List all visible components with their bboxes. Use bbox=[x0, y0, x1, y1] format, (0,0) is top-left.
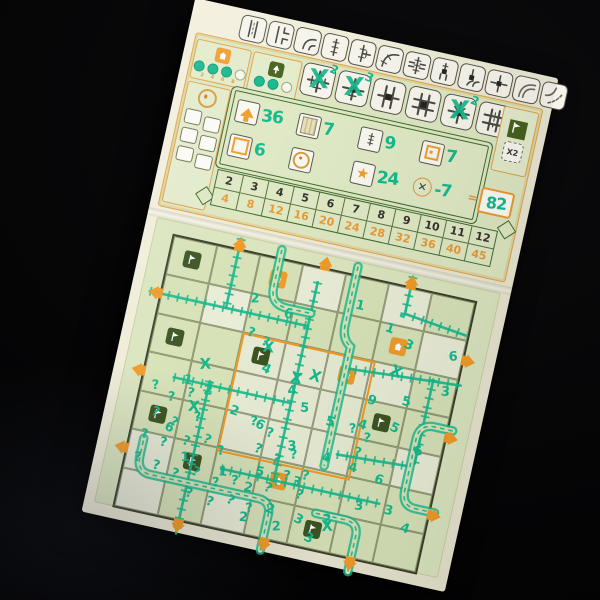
exit-count: 7 bbox=[342, 198, 370, 221]
grid-cell bbox=[209, 448, 260, 496]
handwritten-number: 3 bbox=[382, 503, 393, 519]
special-rail-cross: X2 bbox=[298, 61, 337, 100]
x-mark: X bbox=[289, 368, 304, 388]
grid-cell bbox=[312, 390, 363, 438]
station-space-icon bbox=[388, 336, 408, 356]
exit-table-column: 828 bbox=[363, 204, 396, 244]
exit-points: 28 bbox=[363, 221, 391, 243]
grid-cell bbox=[321, 351, 372, 399]
exit-points: 36 bbox=[414, 233, 442, 255]
question-mark: ? bbox=[158, 434, 169, 450]
forest-space-icon bbox=[164, 327, 184, 347]
x-mark: X bbox=[307, 366, 324, 387]
handwritten-number: 2 bbox=[272, 519, 280, 534]
grid-cell bbox=[372, 322, 423, 370]
special-tiles-row: X2X3X2 bbox=[298, 61, 513, 139]
score-exits: 36 bbox=[234, 98, 300, 134]
forest-space-icon bbox=[250, 346, 270, 366]
round-box bbox=[202, 116, 222, 134]
question-mark: ? bbox=[224, 492, 237, 509]
grid-cell bbox=[252, 255, 303, 303]
exit-points: 32 bbox=[389, 227, 417, 249]
x-mark: X bbox=[321, 517, 333, 535]
special-road-rail-cross bbox=[368, 77, 407, 116]
x-mark: X bbox=[387, 361, 405, 382]
question-mark: ? bbox=[212, 475, 220, 490]
river-curve-tile bbox=[511, 74, 542, 105]
total-score: 82 bbox=[485, 192, 507, 213]
handwritten-number: 2 bbox=[238, 510, 247, 526]
grid-cell bbox=[286, 505, 337, 553]
road-route bbox=[126, 438, 279, 550]
question-mark: ? bbox=[140, 427, 149, 443]
question-mark: ? bbox=[230, 473, 239, 489]
handwritten-number: 3 bbox=[401, 337, 415, 354]
handwritten-number: 5 bbox=[400, 394, 411, 410]
handwritten-number: 4 bbox=[356, 417, 369, 434]
question-mark: ? bbox=[167, 389, 176, 405]
station-tracker: 2468 bbox=[189, 38, 252, 89]
score-errors: ✕ -7 bbox=[411, 175, 468, 206]
round-box bbox=[179, 126, 199, 144]
question-mark: ? bbox=[245, 325, 257, 342]
rail-route bbox=[415, 380, 434, 464]
squares-score: 6 bbox=[253, 140, 266, 161]
road-route bbox=[305, 513, 359, 571]
road-route bbox=[401, 424, 452, 513]
question-mark: ? bbox=[259, 334, 272, 351]
grid-cell bbox=[355, 399, 406, 447]
grid-cell bbox=[363, 361, 414, 409]
exit-score-table: 2438412516620724828932103611401245 bbox=[210, 169, 498, 267]
question-mark: ? bbox=[217, 444, 225, 459]
rail-route bbox=[346, 360, 461, 393]
tracker-dot bbox=[280, 81, 293, 94]
handwritten-number: 9 bbox=[365, 392, 378, 409]
question-mark: ? bbox=[167, 414, 180, 431]
station-space-icon bbox=[336, 365, 356, 385]
grid-cell bbox=[226, 371, 277, 419]
exit-count: 11 bbox=[443, 221, 471, 244]
grid-cell bbox=[286, 303, 337, 351]
handwritten-number: 2 bbox=[228, 403, 241, 420]
exits-arrow-icon bbox=[234, 98, 261, 125]
rail-route bbox=[150, 291, 308, 326]
exit-table-column: 620 bbox=[313, 193, 346, 233]
score-bullseye bbox=[288, 146, 354, 182]
exit-count: 6 bbox=[316, 193, 344, 216]
exit-points: 4 bbox=[211, 188, 239, 210]
star-icon: ★ bbox=[349, 160, 376, 187]
errors-icon: ✕ bbox=[411, 175, 434, 198]
stars-score: 24 bbox=[376, 168, 400, 190]
used-round-mark: 2 bbox=[327, 62, 340, 78]
exit-points: 24 bbox=[338, 216, 366, 238]
exit-count: 10 bbox=[418, 215, 446, 238]
board-fold-crease bbox=[147, 207, 512, 295]
longest-road-score: 7 bbox=[322, 119, 335, 140]
rail-route bbox=[337, 451, 410, 471]
handwritten-number: 5 bbox=[324, 414, 335, 430]
used-x-mark: X bbox=[338, 72, 371, 103]
question-mark: ? bbox=[252, 441, 264, 458]
station-tracker-labels: 2468 bbox=[200, 73, 235, 83]
handwritten-number: 5 bbox=[387, 420, 401, 437]
question-mark: ? bbox=[245, 501, 253, 516]
handwritten-number: 4 bbox=[347, 460, 358, 476]
question-mark: ? bbox=[169, 465, 181, 482]
forest-space-icon bbox=[302, 519, 322, 539]
station-tracker-dots bbox=[192, 59, 246, 81]
tile-reference-row bbox=[237, 14, 569, 112]
handwritten-number: 2 bbox=[263, 501, 276, 518]
used-round-mark: 2 bbox=[468, 93, 481, 109]
handwritten-number: 1 bbox=[182, 372, 193, 388]
used-x-mark: X bbox=[302, 65, 335, 96]
grid-cell bbox=[269, 380, 320, 428]
exit-table-column: 724 bbox=[338, 198, 371, 238]
equals-sign: = bbox=[466, 190, 479, 206]
handwritten-number: 1 bbox=[354, 298, 365, 314]
road-straight-tile bbox=[237, 14, 268, 45]
score-center-squares: 7 bbox=[418, 139, 484, 175]
road-curve-tile bbox=[292, 26, 323, 57]
exit-points: 8 bbox=[236, 193, 264, 215]
question-mark: ? bbox=[293, 487, 305, 504]
score-row-1: 36 7 9 bbox=[232, 93, 484, 181]
handwritten-number: 2 bbox=[203, 383, 212, 399]
exit-points: 20 bbox=[313, 210, 341, 232]
rail-route bbox=[221, 469, 379, 504]
x-mark: X bbox=[199, 355, 211, 373]
question-mark: ? bbox=[265, 425, 276, 441]
question-mark: ? bbox=[363, 431, 372, 447]
rail-route bbox=[226, 239, 241, 308]
grid-cell bbox=[209, 246, 260, 294]
grid-cell bbox=[329, 313, 380, 361]
handwritten-number: 2 bbox=[322, 512, 330, 527]
exit-points: 45 bbox=[465, 244, 493, 266]
rail-route bbox=[176, 381, 210, 533]
grid-cell bbox=[415, 332, 466, 380]
handwritten-number: 6 bbox=[372, 472, 385, 489]
question-mark: ? bbox=[189, 464, 202, 481]
photo-background: 2468 X2X3X2 X2 bbox=[0, 0, 600, 600]
grid-cell bbox=[115, 467, 166, 515]
rail-route bbox=[174, 377, 291, 403]
total-score-tile: 82 bbox=[477, 187, 516, 220]
drawn-routes bbox=[115, 236, 475, 572]
grid-cell bbox=[235, 332, 286, 380]
grid-cell bbox=[218, 409, 269, 457]
score-strip: 36 7 9 bbox=[219, 90, 489, 220]
longest-rail-score: 9 bbox=[383, 133, 396, 154]
handwritten-number: 2 bbox=[250, 291, 258, 306]
handwritten-number: 4 bbox=[259, 360, 273, 377]
exit-table-column: 24 bbox=[211, 170, 244, 210]
handwritten-number: 1 bbox=[218, 464, 227, 480]
special-rail-plus: X2 bbox=[439, 92, 478, 131]
center-squares-score: 7 bbox=[445, 147, 458, 168]
exit-table-column: 1036 bbox=[414, 215, 447, 255]
forest-space-icon bbox=[147, 404, 167, 424]
round-box bbox=[194, 153, 214, 171]
grid-cell bbox=[132, 390, 183, 438]
handwritten-number: 6 bbox=[448, 350, 456, 365]
x-mark: X bbox=[187, 397, 200, 416]
forest-icon bbox=[267, 61, 285, 79]
question-mark: ? bbox=[250, 414, 259, 430]
grid-panel: 261136359445545621263446611223233432253?… bbox=[94, 217, 501, 578]
question-mark: ? bbox=[352, 445, 363, 461]
question-mark: ? bbox=[349, 422, 357, 437]
tracker-dot bbox=[206, 62, 219, 75]
rail-tee-tile bbox=[347, 38, 378, 69]
grid-cells bbox=[115, 236, 475, 572]
grid-exits bbox=[174, 236, 475, 303]
question-mark: ? bbox=[290, 448, 298, 463]
grid-cell bbox=[243, 496, 294, 544]
question-mark: ? bbox=[204, 494, 216, 511]
longest-rail-icon bbox=[357, 126, 384, 153]
grid-cell bbox=[381, 284, 432, 332]
forest-space-icon bbox=[181, 250, 201, 270]
handwritten-number: 6 bbox=[413, 444, 421, 459]
bullseye-icon bbox=[288, 146, 315, 173]
tracker-dot bbox=[220, 65, 233, 78]
grid-cell bbox=[398, 409, 449, 457]
grid-cell bbox=[424, 293, 475, 341]
grid-cell bbox=[149, 313, 200, 361]
play-grid: 261136359445545621263446611223233432253?… bbox=[115, 236, 475, 572]
round-boxes bbox=[175, 108, 222, 168]
handwritten-number: 5 bbox=[254, 464, 265, 480]
square-icon bbox=[226, 132, 253, 159]
grid-frame bbox=[112, 234, 477, 575]
center-squares-outline bbox=[217, 332, 376, 481]
decor-diamond-right bbox=[497, 220, 516, 239]
grid-cell bbox=[346, 438, 397, 486]
station-space-icon bbox=[268, 471, 288, 491]
handwritten-number: 3 bbox=[290, 474, 303, 491]
grid-cell bbox=[175, 400, 226, 448]
handwritten-number: 3 bbox=[440, 384, 449, 400]
station-curve-tile bbox=[456, 62, 487, 93]
exit-points: 16 bbox=[287, 205, 315, 227]
question-mark: ? bbox=[152, 378, 160, 393]
exit-count: 9 bbox=[392, 209, 420, 232]
question-mark: ? bbox=[133, 450, 142, 466]
question-mark: ? bbox=[200, 432, 213, 449]
special-road-cross bbox=[474, 100, 513, 139]
grid-cell bbox=[372, 524, 423, 572]
handwritten-number: 3 bbox=[287, 439, 295, 454]
tracker-dot bbox=[252, 75, 265, 88]
question-mark: ? bbox=[283, 468, 292, 484]
handwritten-number: 6 bbox=[283, 307, 292, 323]
exits-score: 36 bbox=[260, 106, 284, 128]
tracker-dot bbox=[266, 78, 279, 91]
station-space-icon bbox=[267, 269, 287, 289]
bonus-box: X2 bbox=[490, 105, 539, 177]
handwritten-number: 1 bbox=[180, 450, 188, 465]
grid-cell bbox=[381, 486, 432, 534]
grid-cell bbox=[329, 515, 380, 563]
grid-cell bbox=[166, 236, 217, 284]
handwritten-number: 3 bbox=[353, 498, 362, 514]
forest-tracker-dots bbox=[252, 75, 292, 94]
question-mark: ? bbox=[185, 385, 196, 401]
round-box bbox=[183, 108, 203, 126]
exit-table-column: 412 bbox=[262, 181, 295, 221]
exit-table-column: 932 bbox=[389, 209, 422, 249]
exit-table-column: 516 bbox=[287, 187, 320, 227]
exit-count: 3 bbox=[240, 176, 268, 199]
exit-count: 12 bbox=[469, 226, 497, 249]
scoring-panel: 2468 X2X3X2 X2 bbox=[157, 5, 549, 283]
forest-space-icon bbox=[371, 413, 391, 433]
grid-cell bbox=[192, 323, 243, 371]
grid-cell bbox=[303, 428, 354, 476]
question-mark: ? bbox=[180, 433, 192, 450]
dot-label: 8 bbox=[231, 80, 235, 84]
exit-count: 8 bbox=[367, 204, 395, 227]
question-mark: ? bbox=[194, 410, 202, 425]
grid-cell bbox=[295, 467, 346, 515]
score-stars: ★ 24 bbox=[349, 160, 415, 196]
exit-table-column: 1245 bbox=[465, 226, 497, 266]
handwritten-number: 3 bbox=[291, 511, 305, 528]
dot-label: 4 bbox=[210, 76, 214, 80]
handwritten-number: 2 bbox=[242, 480, 253, 496]
handwritten-number: 4 bbox=[321, 450, 330, 466]
lake-corner-tile bbox=[538, 80, 569, 111]
center-squares-icon bbox=[418, 139, 445, 166]
grid-cell bbox=[278, 342, 329, 390]
grid-cell bbox=[158, 477, 209, 525]
scoring-zone: 2468 X2X3X2 X2 bbox=[157, 32, 543, 283]
handwritten-number: 4 bbox=[287, 384, 295, 399]
special-station-cross: X3 bbox=[333, 69, 372, 108]
handwritten-number: 5 bbox=[299, 400, 308, 416]
grid-cell bbox=[166, 438, 217, 486]
station-tee-tile bbox=[483, 68, 514, 99]
railroad-ink-board: 2468 X2X3X2 X2 bbox=[81, 0, 558, 592]
question-mark: ? bbox=[184, 485, 195, 501]
station-straight-tile bbox=[429, 56, 460, 87]
question-mark: ? bbox=[300, 468, 311, 484]
grid-cell bbox=[406, 370, 457, 418]
grid-cell bbox=[123, 429, 174, 477]
question-mark: ? bbox=[261, 480, 274, 497]
score-longest-rail: 9 bbox=[357, 126, 423, 162]
road-tee-tile bbox=[265, 20, 296, 51]
handwritten-number: 1 bbox=[383, 320, 396, 337]
rail-curve-tile bbox=[374, 44, 405, 75]
handwritten-number: 3 bbox=[301, 530, 315, 547]
score-squares: 6 bbox=[226, 132, 292, 168]
grid-cell bbox=[157, 275, 208, 323]
errors-score: -7 bbox=[433, 180, 452, 202]
rail-route bbox=[274, 282, 318, 481]
station-icon bbox=[214, 46, 232, 64]
longest-road-icon bbox=[295, 112, 322, 139]
grid-cell bbox=[243, 294, 294, 342]
road-route bbox=[270, 250, 323, 314]
road-route bbox=[314, 267, 367, 466]
handwritten-number: 4 bbox=[398, 520, 411, 537]
question-mark: ? bbox=[270, 451, 283, 468]
round-box bbox=[198, 134, 218, 152]
grid-cell bbox=[261, 419, 312, 467]
used-x-mark: X bbox=[443, 96, 476, 127]
rail-route bbox=[403, 277, 475, 336]
exit-count: 4 bbox=[266, 181, 294, 204]
score-row-2: 6 ★ 24 ✕ -7 bbox=[225, 127, 517, 223]
round-box bbox=[175, 145, 195, 163]
exit-count: 2 bbox=[215, 170, 243, 193]
grid-annotations: 261136359445545621263446611223233432253?… bbox=[174, 236, 475, 303]
flag-icon bbox=[507, 119, 528, 140]
bullseye-icon bbox=[196, 87, 219, 110]
grid-cell bbox=[252, 457, 303, 505]
special-station-plus bbox=[404, 85, 443, 124]
exit-table-column: 38 bbox=[236, 176, 269, 216]
dot-label: 2 bbox=[200, 73, 204, 77]
forest-space-icon bbox=[182, 452, 202, 472]
rail-straight-tile bbox=[319, 32, 350, 63]
grid-cell bbox=[338, 274, 389, 322]
grid-cell bbox=[183, 361, 234, 409]
dot-label: 6 bbox=[220, 78, 224, 82]
handwritten-number: 6 bbox=[252, 416, 266, 433]
round-tracker bbox=[161, 80, 231, 211]
forest-tracker bbox=[246, 51, 303, 101]
score-longest-road: 7 bbox=[295, 112, 361, 148]
decor-diamond-left bbox=[195, 186, 214, 205]
grid-cell bbox=[200, 486, 251, 534]
grid-cell bbox=[200, 284, 251, 332]
tracker-dot bbox=[192, 59, 205, 72]
used-round-mark: 3 bbox=[363, 69, 376, 85]
grid-cell bbox=[140, 352, 191, 400]
handwritten-number: 6 bbox=[162, 419, 176, 436]
exit-points: 40 bbox=[440, 238, 468, 260]
tracker-dot bbox=[233, 68, 246, 81]
question-mark: ? bbox=[151, 457, 162, 473]
exit-points: 12 bbox=[262, 199, 290, 221]
overpass-tile bbox=[401, 50, 432, 81]
exit-table-column: 1140 bbox=[440, 221, 473, 261]
grid-cell bbox=[338, 476, 389, 524]
exit-count: 5 bbox=[291, 187, 319, 210]
grid-cell bbox=[295, 265, 346, 313]
x-mark: X bbox=[262, 338, 275, 357]
multiplier-tile: X2 bbox=[501, 140, 525, 164]
grid-cell bbox=[389, 447, 440, 495]
question-mark: ? bbox=[150, 404, 162, 421]
